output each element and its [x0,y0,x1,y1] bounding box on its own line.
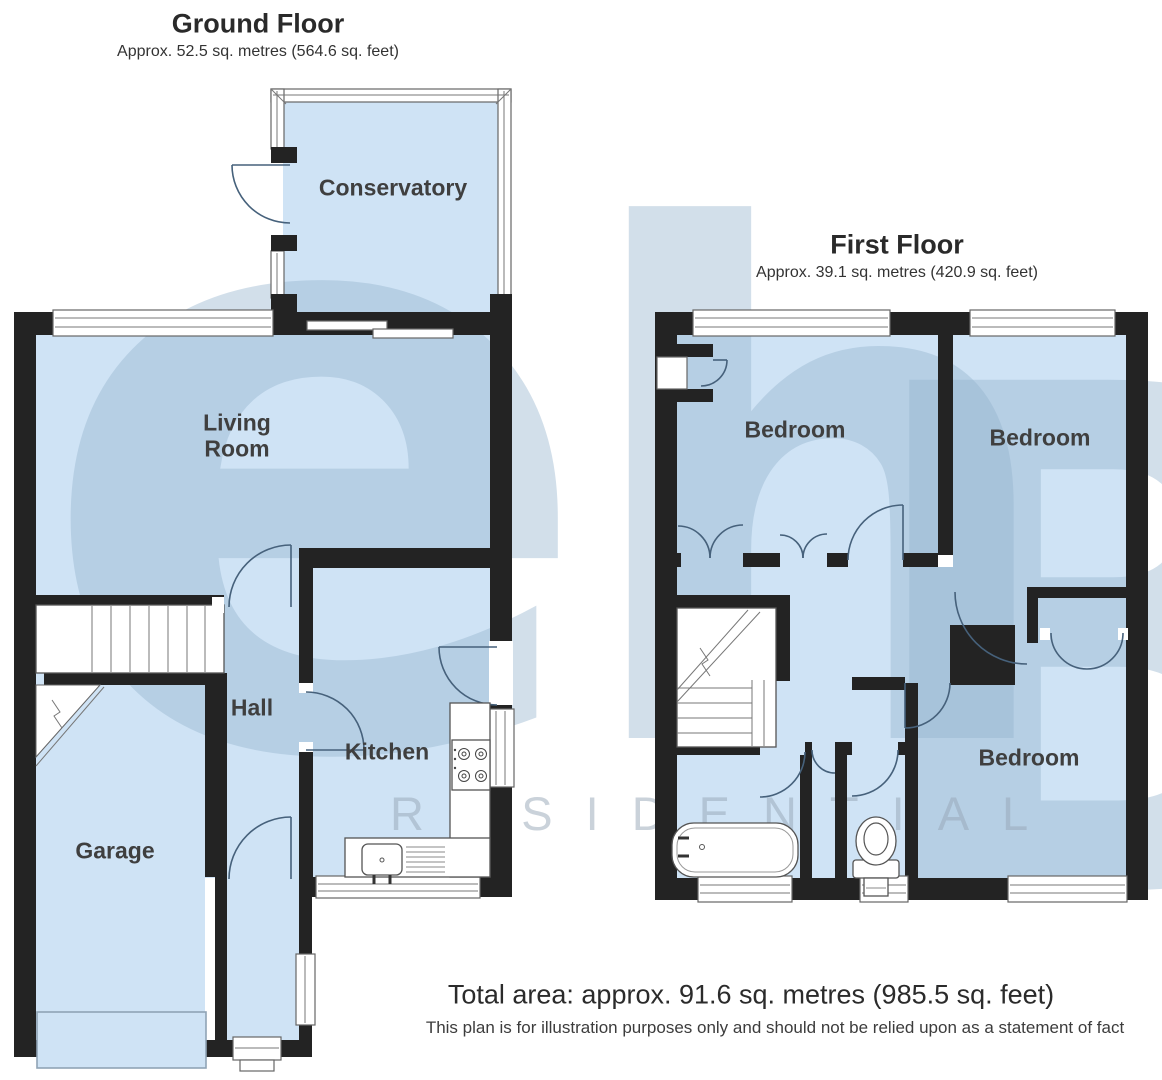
kitchen-side-window [488,709,514,787]
floorplan-page: e h B RESIDENTIAL [0,0,1162,1080]
first-floor-subtitle: Approx. 39.1 sq. metres (420.9 sq. feet) [756,264,1038,282]
front-door [233,1037,281,1071]
bath-icon [672,823,798,877]
ground-floor-subtitle: Approx. 52.5 sq. metres (564.6 sq. feet) [117,43,399,61]
first-floor-stairs [677,608,776,747]
living-room-window [53,310,273,336]
room-label-kitchen: Kitchen [345,739,429,766]
bedroom1-window [693,310,890,336]
stove-icon [452,740,490,790]
room-label-living-room: Living Room [172,410,302,463]
room-label-conservatory: Conservatory [319,175,467,202]
porch-window [296,954,315,1025]
garage-door [37,1012,206,1068]
disclaimer-text: This plan is for illustration purposes o… [426,1018,1124,1038]
floor-plan-graphic: e h B RESIDENTIAL [0,0,1162,1080]
ground-floor-title: Ground Floor [172,9,344,40]
bedroom3-window [1008,876,1127,902]
kitchen-bottom-window [316,876,480,898]
bedroom2-window [970,310,1115,336]
room-label-bedroom-2: Bedroom [990,425,1091,452]
room-label-garage: Garage [75,838,154,865]
room-label-hall: Hall [231,695,273,722]
room-label-bedroom-1: Bedroom [745,417,846,444]
room-label-bedroom-3: Bedroom [979,745,1080,772]
total-area-text: Total area: approx. 91.6 sq. metres (985… [448,980,1054,1011]
first-floor-title: First Floor [830,230,964,261]
bathroom-window [698,876,792,902]
